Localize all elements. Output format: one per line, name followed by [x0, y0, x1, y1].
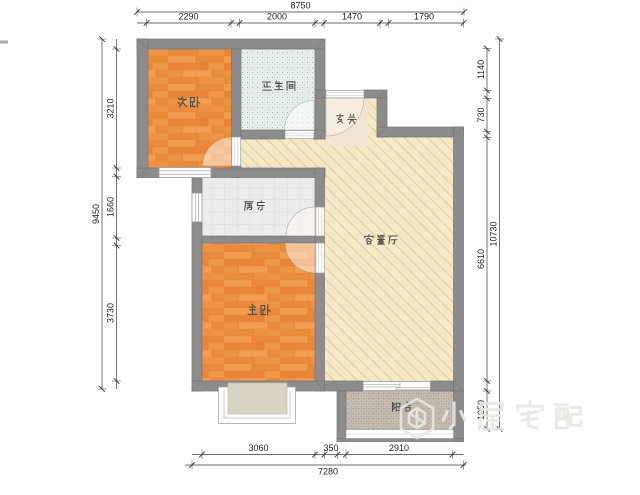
svg-text:350: 350 [323, 443, 338, 453]
svg-text:8750: 8750 [290, 1, 310, 11]
svg-text:9450: 9450 [91, 204, 101, 224]
svg-text:3060: 3060 [248, 443, 268, 453]
svg-text:2000: 2000 [267, 12, 287, 22]
svg-text:730: 730 [476, 107, 486, 122]
svg-text:2910: 2910 [389, 443, 409, 453]
svg-text:2290: 2290 [178, 12, 198, 22]
svg-text:1140: 1140 [476, 60, 486, 79]
svg-text:6610: 6610 [476, 249, 486, 269]
svg-text:1790: 1790 [414, 12, 434, 22]
svg-text:10730: 10730 [488, 221, 498, 246]
svg-text:7280: 7280 [318, 467, 338, 477]
svg-text:3210: 3210 [105, 98, 115, 118]
svg-text:1470: 1470 [342, 12, 362, 22]
svg-text:3730: 3730 [105, 303, 115, 323]
svg-text:1660: 1660 [105, 197, 115, 217]
